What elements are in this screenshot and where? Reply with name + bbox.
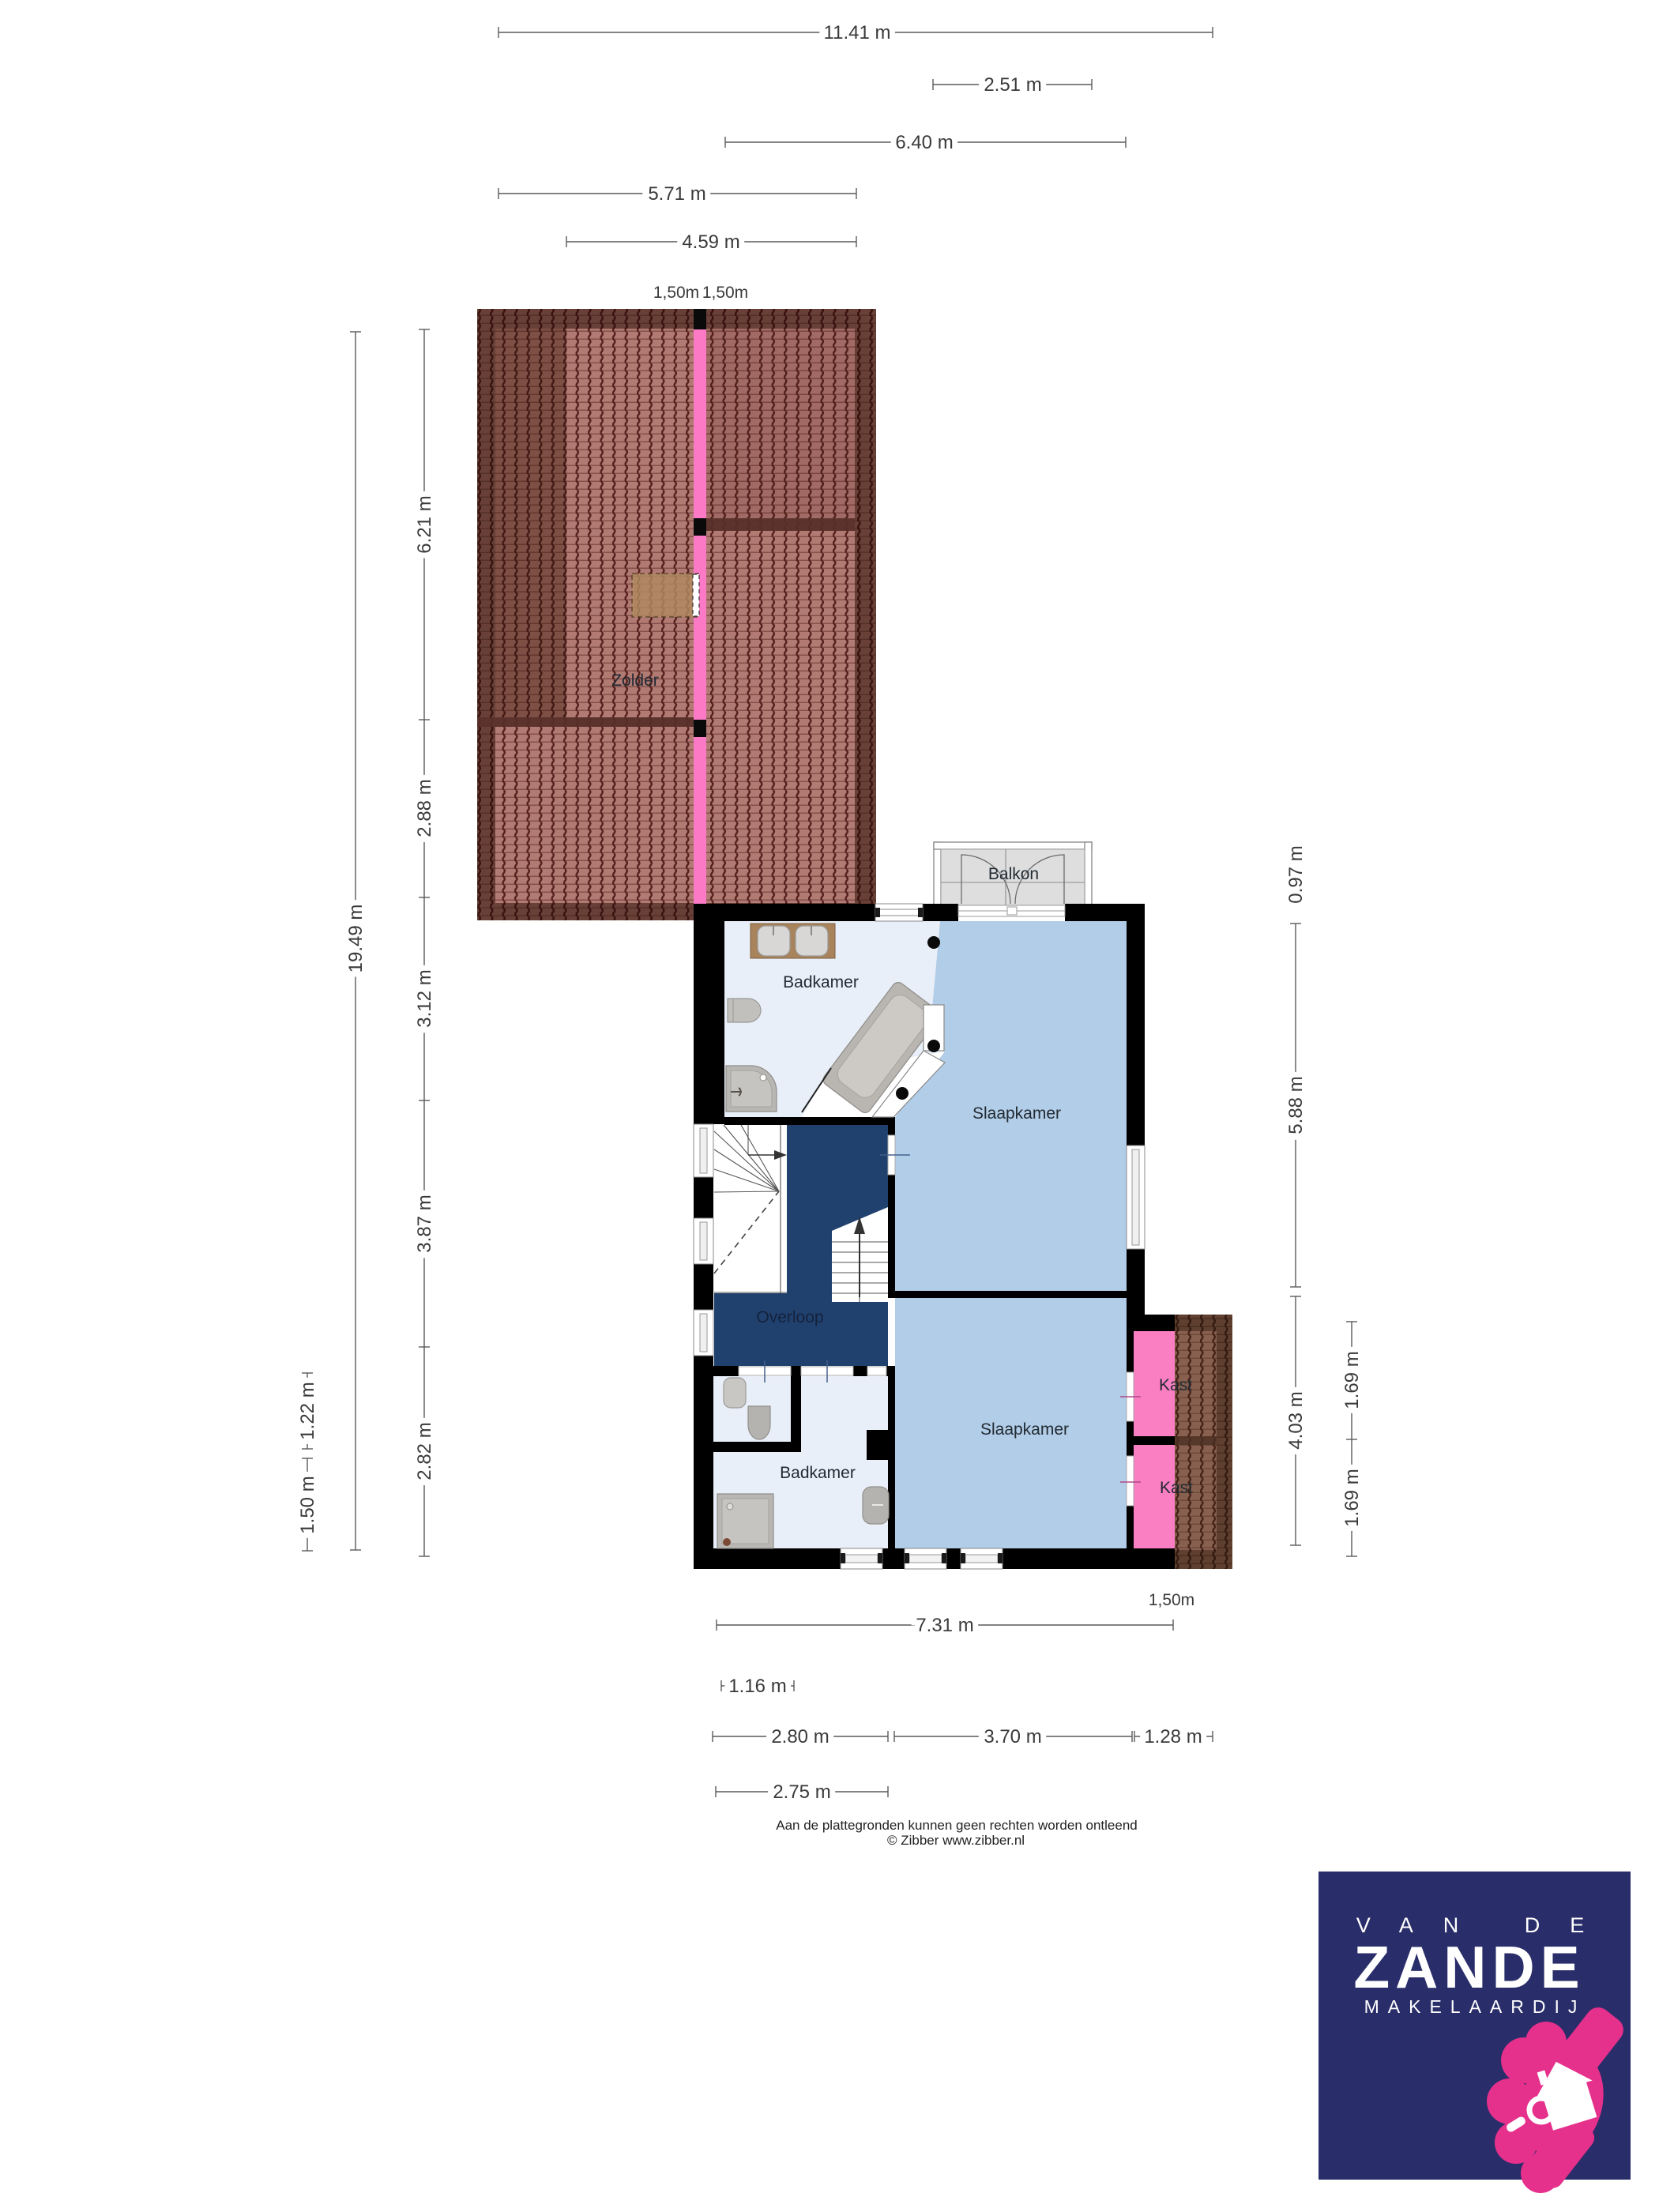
svg-text:2.80 m: 2.80 m <box>771 1726 829 1747</box>
svg-text:1.16 m: 1.16 m <box>728 1676 786 1697</box>
svg-text:7.31 m: 7.31 m <box>916 1615 973 1636</box>
svg-text:6.21 m: 6.21 m <box>414 495 435 553</box>
svg-text:Balkon: Balkon <box>988 865 1039 883</box>
svg-text:11.41 m: 11.41 m <box>824 22 891 43</box>
svg-text:0.97 m: 0.97 m <box>1285 845 1307 903</box>
svg-text:1.50 m: 1.50 m <box>297 1476 318 1533</box>
svg-text:1.28 m: 1.28 m <box>1144 1726 1202 1747</box>
svg-text:1,50m: 1,50m <box>702 284 748 302</box>
svg-text:5.88 m: 5.88 m <box>1285 1076 1307 1134</box>
svg-text:Badkamer: Badkamer <box>780 1464 856 1482</box>
svg-text:Kast: Kast <box>1159 1376 1192 1394</box>
svg-text:4.03 m: 4.03 m <box>1285 1391 1307 1449</box>
svg-text:3.12 m: 3.12 m <box>414 969 435 1027</box>
svg-text:1.69 m: 1.69 m <box>1341 1351 1363 1409</box>
svg-text:Overloop: Overloop <box>756 1308 823 1326</box>
svg-text:Slaapkamer: Slaapkamer <box>972 1104 1061 1123</box>
svg-text:1,50m: 1,50m <box>1149 1591 1194 1609</box>
svg-text:5.71 m: 5.71 m <box>648 183 705 205</box>
svg-text:1.69 m: 1.69 m <box>1341 1469 1363 1526</box>
svg-text:3.70 m: 3.70 m <box>984 1726 1041 1747</box>
svg-text:1.22 m: 1.22 m <box>297 1382 318 1439</box>
svg-text:2.75 m: 2.75 m <box>773 1781 830 1803</box>
svg-text:19.49 m: 19.49 m <box>345 905 367 973</box>
svg-text:1,50m: 1,50m <box>653 284 699 302</box>
svg-text:Aan de plattegronden kunnen ge: Aan de plattegronden kunnen geen rechten… <box>776 1818 1137 1833</box>
svg-text:ZANDE: ZANDE <box>1353 1934 1585 2000</box>
svg-text:Badkamer: Badkamer <box>783 973 859 991</box>
svg-text:MAKELAARDIJ: MAKELAARDIJ <box>1364 1996 1586 2017</box>
svg-text:© Zibber www.zibber.nl: © Zibber www.zibber.nl <box>887 1833 1025 1848</box>
svg-text:2.82 m: 2.82 m <box>414 1422 435 1480</box>
svg-text:Slaapkamer: Slaapkamer <box>980 1420 1069 1439</box>
svg-text:6.40 m: 6.40 m <box>895 132 953 153</box>
svg-text:2.88 m: 2.88 m <box>414 779 435 837</box>
svg-text:3.87 m: 3.87 m <box>414 1194 435 1252</box>
svg-text:2.51 m: 2.51 m <box>984 74 1041 96</box>
svg-text:4.59 m: 4.59 m <box>682 231 739 253</box>
svg-text:Zolder: Zolder <box>611 671 659 690</box>
svg-text:Kast: Kast <box>1160 1479 1193 1497</box>
